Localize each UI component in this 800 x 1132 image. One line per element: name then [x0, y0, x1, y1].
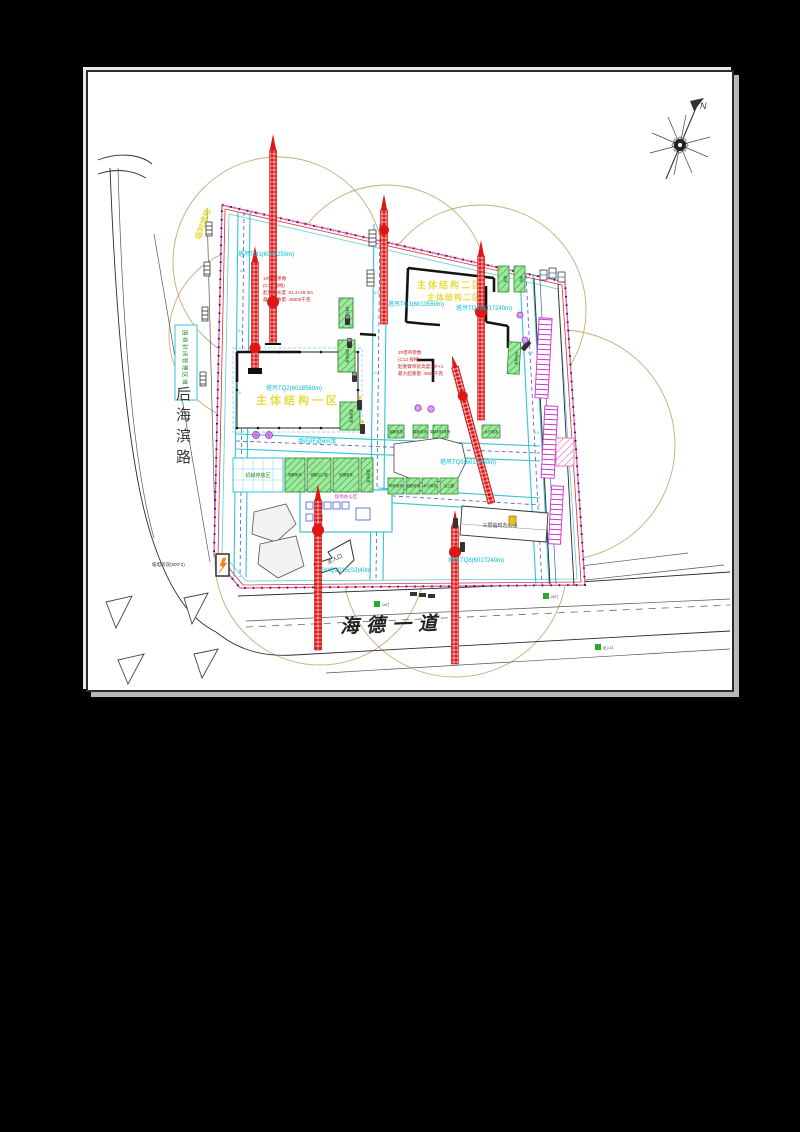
yard-label: 模板堆场 [366, 469, 371, 483]
crane-label-1: 塔吊TQ1(6017250m) [238, 250, 294, 258]
yard-label: 木方堆场 [484, 429, 498, 434]
left-road-name: 后海滨路 [172, 386, 193, 470]
building1-name: 主体结构二区 [417, 279, 483, 290]
yard-label: 钢筋堆场 [389, 429, 403, 434]
site-plan-figure: 主体结构二区 主体结构二区 主体结构一区 现场办公区 三层临时办公楼 [86, 70, 734, 692]
yard-label: 材料堆场 [514, 351, 520, 365]
yard-label: 木方堆场 [423, 483, 437, 488]
site-plan-svg: 主体结构二区 主体结构二区 主体结构一区 现场办公区 三层临时办公楼 [88, 72, 732, 690]
machine-park-label: 机械停放区 [245, 472, 270, 479]
bottom-road-name: 海德一道 [340, 608, 445, 639]
yard-label: 模板堆场 [349, 409, 354, 423]
road-mark: 6.0 [236, 391, 241, 395]
road-line [98, 171, 146, 178]
road-mark: 6.0 [528, 351, 533, 355]
excavator [509, 516, 516, 525]
crane-label-2: 塔吊TQ2(6018560m) [266, 384, 322, 392]
spec-line: (C13 规格) [398, 356, 420, 363]
road-mark: 6.0 [238, 329, 243, 333]
scaffold-strip [548, 486, 563, 545]
yard-label: 周转堆场 [345, 349, 350, 363]
crane-label-7: 塔吊TQ6(6017240m) [448, 556, 504, 564]
yard-label: 周转材料堆场 [430, 429, 451, 434]
road-mark: 6.0 [534, 431, 539, 435]
yard-label: 钢筋加工棚 [311, 472, 329, 477]
spec-line: 1#塔吊参数 [263, 275, 287, 282]
yard-label: 砌块堆场 [389, 483, 403, 488]
crane-label-5: 塔吊TQ5(6017260m) [440, 458, 496, 466]
building1-name-row2: 主体结构二区 [427, 292, 481, 302]
spec-line: 2#塔吊参数 [398, 349, 422, 356]
bottom-road-south-sidewalk [326, 649, 730, 673]
road-width-label: 场内环道6m宽 [298, 437, 336, 445]
crane-label-6: SMQ2015(S2)40m [321, 568, 371, 574]
building2-name: 主体结构一区 [256, 393, 340, 407]
pink-hatch-area [556, 438, 574, 466]
road-line [98, 155, 152, 164]
yard-label: 堆场 [503, 276, 508, 283]
gate2-label: 2#门 [551, 594, 559, 599]
spec-line: 最大起重量: 45500千克 [263, 296, 311, 303]
gate3-label: 出入口 [603, 645, 613, 650]
spec-line: 起重臂长度: 61.3+28.3m [263, 289, 313, 296]
spec-line: (C12 规格) [263, 282, 285, 289]
bottom-road-south-edge [216, 631, 730, 655]
yard-label: 钢筋堆场 [406, 483, 420, 488]
road-mark: 6.0 [372, 371, 377, 375]
traffic-islands [106, 593, 218, 684]
site-office: 现场办公区 [300, 490, 392, 532]
power-note: 临电房双(800*2) [152, 561, 185, 568]
spec-line: 起重臂吊装高度: 4F+1 [398, 363, 444, 370]
crane-label-3: 塔吊TQ3(6013560m) [388, 300, 444, 308]
yard-label: 模板堆场 [413, 429, 427, 434]
crane-label-4: 塔吊TQ4(6017240m) [456, 304, 512, 312]
road-mark: 6.0 [374, 291, 379, 295]
yard-label: 堆场 [519, 276, 524, 283]
compass-hub-center [678, 143, 682, 147]
road-mark: 6.0 [540, 511, 545, 515]
road-mark: 6.0 [240, 269, 245, 273]
left-road-inner-edge [118, 168, 154, 538]
yard-label: 加工棚 [444, 483, 455, 488]
north-compass: N [650, 98, 710, 179]
gate1-label: 1#门 [382, 602, 390, 607]
north-label: N [700, 101, 707, 111]
enclosure-label: 围挡封闭管理区域 [181, 330, 189, 386]
yard-label: 型钢堆场 [339, 472, 353, 477]
office-label: 现场办公区 [335, 493, 358, 500]
power-box: 临电房双(800*2) [152, 554, 229, 576]
yard-label: 钢筋堆场 [288, 472, 302, 477]
spec-line: 最大起重量: 4500千克 [398, 370, 443, 377]
